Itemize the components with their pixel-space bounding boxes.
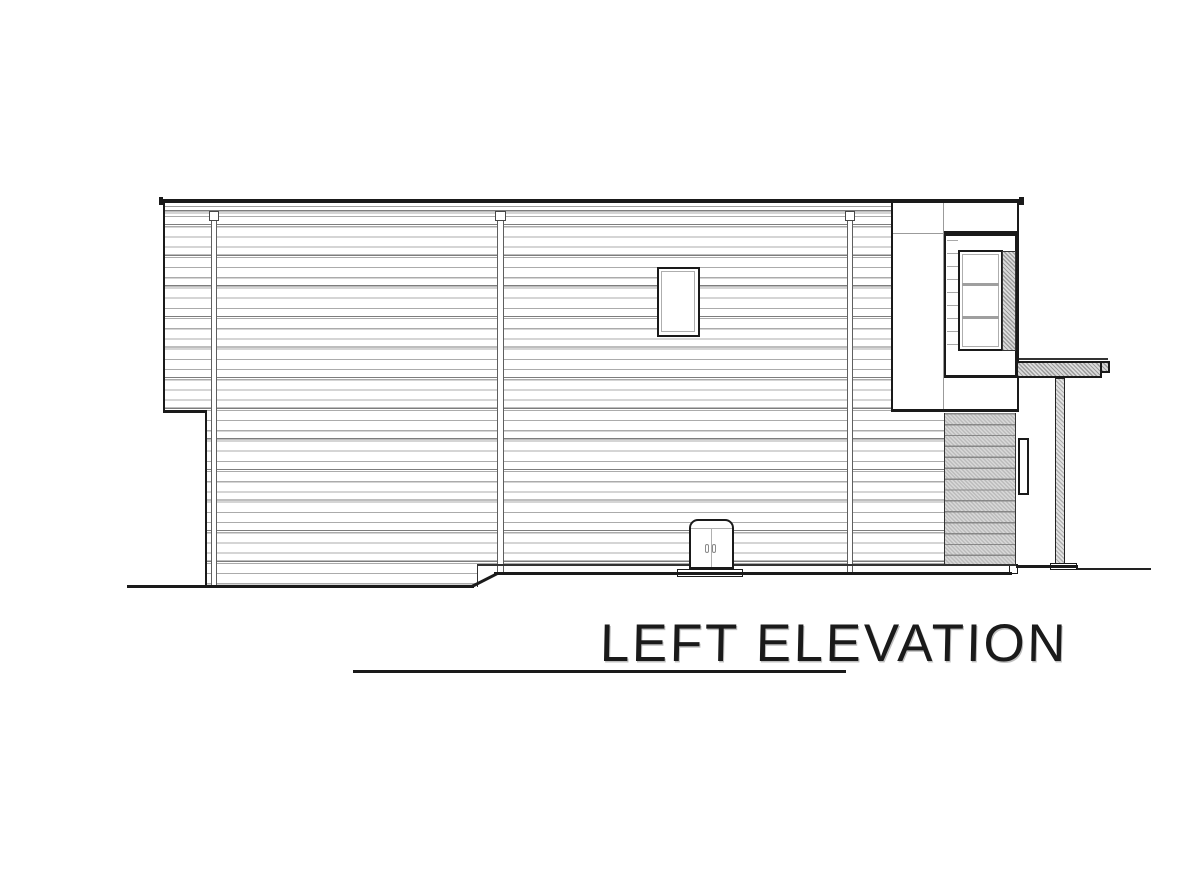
porch-floor-line <box>1016 565 1078 568</box>
stair-window-mullion <box>962 283 999 286</box>
wall-mask-left <box>120 413 205 585</box>
grade-line-left <box>127 585 474 588</box>
porch-post <box>1055 378 1065 565</box>
upper-window-frame <box>661 271 695 332</box>
stair-window-frame <box>962 254 998 346</box>
surround-siding-lines <box>947 240 958 352</box>
grade-line-mid <box>494 572 1012 575</box>
window-jamb-hatch <box>1002 251 1016 351</box>
downspout-bracket <box>845 211 856 222</box>
cabinet-handle <box>712 544 716 553</box>
stair-window <box>958 250 1003 351</box>
downspout <box>847 219 854 573</box>
left-wall-edge-upper <box>163 199 166 413</box>
downspout-bracket <box>209 211 220 222</box>
bump-out-band-line <box>893 233 944 234</box>
fascia-bottom-line <box>164 206 892 207</box>
wall-sconce <box>1018 438 1030 495</box>
siding-field <box>164 205 944 586</box>
downspout <box>497 219 504 573</box>
foundation-band <box>478 566 1016 585</box>
downspout <box>211 219 218 585</box>
accent-siding-panel <box>944 413 1016 566</box>
drawing-title: LEFT ELEVATION <box>599 617 1068 670</box>
canopy-fascia-tip <box>1100 361 1110 373</box>
left-wall-edge-lower <box>205 411 208 587</box>
left-wall-step-line <box>163 410 208 413</box>
porch-canopy <box>1016 361 1102 378</box>
upper-window <box>657 267 700 337</box>
cabinet-handle <box>705 544 709 553</box>
utility-cabinet <box>689 519 734 569</box>
wall-bottom-line <box>477 564 1016 566</box>
downspout-bracket <box>495 211 506 222</box>
grade-line-right <box>1077 568 1151 570</box>
stair-window-mullion <box>962 316 999 319</box>
elevation-drawing: LEFT ELEVATION <box>0 0 1200 880</box>
title-underline <box>353 670 846 673</box>
roof-tick-right <box>1019 197 1024 205</box>
roof-fascia-line <box>160 199 1023 203</box>
